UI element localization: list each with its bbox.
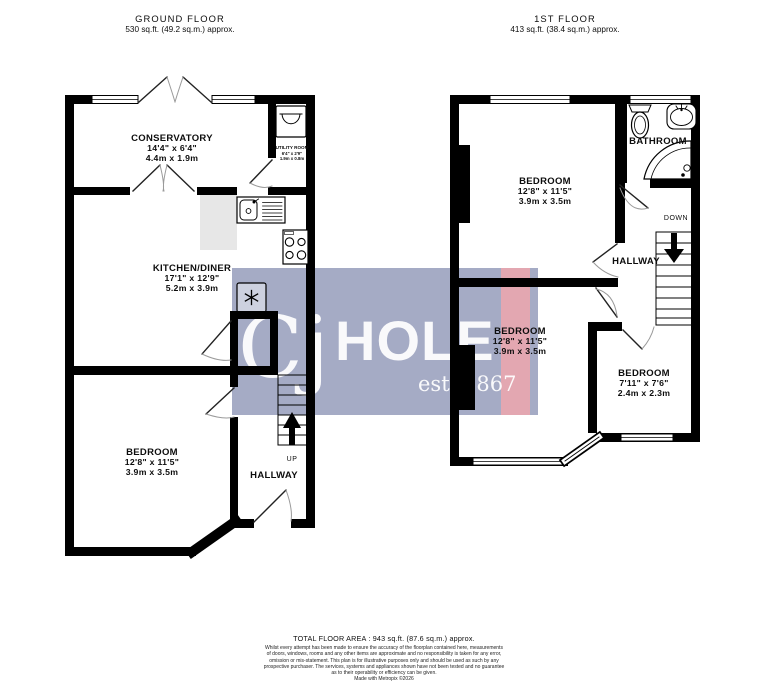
room-label-ff-bedroom2: BEDROOM 12'8" x 11'5" 3.9m x 3.5m [493, 327, 547, 356]
wall [650, 179, 700, 188]
front-door-swing [254, 490, 291, 522]
wall [270, 319, 278, 373]
wall [615, 183, 625, 243]
wall [230, 375, 238, 387]
stairs-up [278, 375, 306, 445]
floorplan-canvas [0, 0, 768, 684]
stairs-down [656, 232, 691, 325]
sink-icon [237, 197, 285, 223]
ground-floor-title: GROUND FLOOR [125, 13, 234, 24]
ground-floor-area: 530 sq.ft. (49.2 sq.m.) approx. [125, 25, 234, 34]
door-swing [139, 77, 211, 102]
wall [230, 417, 238, 519]
stairs-up-label: UP [287, 455, 298, 465]
basin-icon [667, 104, 696, 129]
room-label-gf-hallway: HALLWAY [250, 471, 298, 481]
chimney-breast [459, 145, 470, 223]
room-label-conservatory: CONSERVATORY 14'4" x 6'4" 4.4m x 1.9m [131, 134, 213, 163]
floorplan-page: Cj HOLE est. 1867 [0, 0, 768, 684]
fridge-icon [237, 283, 266, 312]
wall [197, 187, 237, 195]
door-swing [623, 327, 654, 349]
total-floor-area: TOTAL FLOOR AREA : 943 sq.ft. (87.6 sq.m… [293, 634, 475, 643]
stove-icon [283, 230, 308, 264]
metropix-credit: Made with Metropix ©2026 [264, 676, 505, 682]
door-swing [133, 165, 194, 191]
wall [268, 187, 315, 195]
first-floor-title: 1ST FLOOR [510, 13, 619, 24]
wall [65, 366, 278, 375]
up-arrow-icon [283, 412, 301, 445]
room-label-gf-bedroom: BEDROOM 12'8" x 11'5" 3.9m x 3.5m [125, 448, 179, 477]
wall [65, 547, 196, 556]
wall [230, 311, 238, 366]
wall-diagonal [192, 521, 236, 552]
door-swing [202, 321, 231, 360]
door-swing [250, 160, 272, 187]
wall [231, 519, 254, 528]
kitchen-counter [200, 195, 237, 250]
room-label-ff-hallway: HALLWAY [612, 257, 660, 267]
disclaimer: Whilst every attempt has been made to en… [264, 645, 505, 683]
room-label-utility: UTILITY ROOM 6'4" x 2'9" 1.9m x 0.8m [276, 145, 309, 162]
stairs-down-label: DOWN [664, 214, 688, 224]
wall [588, 322, 597, 433]
down-arrow-icon [664, 233, 684, 263]
wall [691, 95, 700, 442]
door-swing [596, 288, 617, 317]
wall [588, 322, 622, 331]
toilet-icon [629, 105, 651, 138]
room-label-ff-bedroom1: BEDROOM 12'8" x 11'5" 3.9m x 3.5m [518, 177, 572, 206]
bay-window [473, 434, 673, 465]
door-swing [206, 388, 234, 418]
first-floor-area: 413 sq.ft. (38.4 sq.m.) approx. [510, 25, 619, 34]
wall [65, 95, 74, 556]
room-label-bathroom: BATHROOM [629, 137, 687, 147]
room-label-kitchen: KITCHEN/DINER 17'1" x 12'9" 5.2m x 3.9m [153, 264, 231, 293]
washer-icon [276, 106, 306, 137]
first-floor-header: 1ST FLOOR 413 sq.ft. (38.4 sq.m.) approx… [510, 13, 619, 34]
wall [65, 187, 130, 195]
wall [450, 278, 618, 287]
chimney-breast [459, 345, 475, 410]
wall [615, 104, 627, 183]
room-label-ff-bedroom3: BEDROOM 7'11" x 7'6" 2.4m x 2.3m [618, 369, 671, 398]
wall [570, 95, 630, 104]
ground-floor-header: GROUND FLOOR 530 sq.ft. (49.2 sq.m.) app… [125, 13, 234, 34]
first-floor-plan [450, 95, 700, 466]
